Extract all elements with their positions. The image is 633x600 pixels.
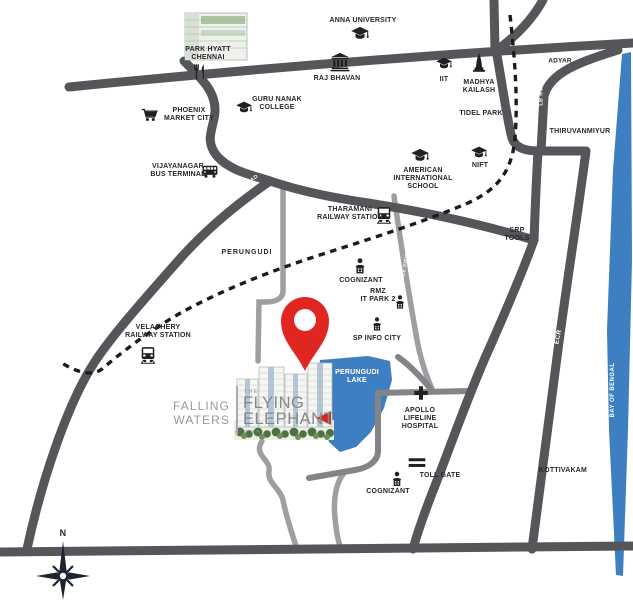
tharamani-railway-station-label: THARAMANI RAILWAY STATION <box>317 206 383 222</box>
phoenix-market-city-label: PHOENIX MARKET CITY <box>164 107 214 123</box>
velachery-railway-station-label: VELACHERY RAILWAY STATION <box>125 324 191 340</box>
perungudi-label: PERUNGUDI <box>221 249 272 257</box>
anna-university-label: ANNA UNIVERSITY <box>330 17 397 25</box>
temple-icon <box>469 53 490 74</box>
graduation-cap-icon <box>236 100 253 117</box>
guru-nanak-college-label: GURU NANAK COLLEGE <box>252 96 302 112</box>
lake-view-rd-label: LAKE VIEW RD <box>401 244 413 285</box>
rmz-it-park-2-label: RMZ IT PARK 2 <box>360 288 395 304</box>
graduation-cap-icon <box>351 25 370 44</box>
tharamani-main-road-label: THARAMANI MAIN ROAD <box>198 174 260 221</box>
hospital-cross-icon <box>413 385 430 402</box>
project-logo: FALLING WATERS THE FLYING ELEPHANT OMR <box>152 386 334 435</box>
iit-label: IIT <box>440 76 449 84</box>
developer-name: FALLING WATERS <box>152 386 230 427</box>
project-name-tagline: OMR <box>244 429 334 434</box>
shopping-cart-icon <box>141 107 159 125</box>
office-icon <box>370 317 385 332</box>
cognizant-south-label: COGNIZANT <box>366 488 409 496</box>
toll-gate-label: TOLL GATE <box>420 472 461 480</box>
kottivakam-label: KOTTIVAKAM <box>539 467 587 475</box>
raj-bhavan-label: RAJ BHAVAN <box>314 75 361 83</box>
restaurant-icon <box>192 64 209 81</box>
project-name: THE FLYING ELEPHANT OMR <box>243 386 334 434</box>
adyar-label: ADYAR <box>548 57 572 64</box>
graduation-cap-icon <box>411 147 430 166</box>
nift-label: NIFT <box>472 162 488 170</box>
park-hyatt-chennai-label: PARK HYATT CHENNAI <box>185 46 230 62</box>
developer-name-line2: WATERS <box>152 413 230 427</box>
thiruvanmiyur-label: THIRUVANMIYUR <box>550 128 611 136</box>
label-layer: ANNA UNIVERSITYPARK HYATT CHENNAIRAJ BHA… <box>0 0 633 600</box>
ecr-label: ECR <box>554 329 563 345</box>
bank-icon <box>330 52 351 73</box>
location-map: ANNA UNIVERSITYPARK HYATT CHENNAIRAJ BHA… <box>0 0 633 600</box>
office-icon <box>352 258 369 275</box>
omr-label: OMR <box>457 327 470 345</box>
toll-gate-icon <box>408 454 427 473</box>
project-name-line2: ELEPHANT <box>243 411 334 427</box>
american-international-school-label: AMERICAN INTERNATIONAL SCHOOL <box>393 167 452 191</box>
vijayanagar-bus-terminal-label: VIJAYANAGAR BUS TERMINAL <box>150 163 205 179</box>
lb-road-label: LB ROAD <box>539 78 544 105</box>
office-icon <box>389 471 405 487</box>
project-name-line1: FLYING <box>243 395 334 411</box>
perungudi-lake-label: PERUNGUDI LAKE <box>335 369 379 385</box>
graduation-cap-icon <box>436 56 453 73</box>
graduation-cap-icon <box>471 145 488 162</box>
logo-divider <box>236 386 238 435</box>
sp-info-city-label: SP INFO CITY <box>353 335 401 343</box>
developer-name-line1: FALLING <box>152 399 230 413</box>
madhya-kailash-label: MADHYA KAILASH <box>463 79 496 95</box>
train-icon <box>139 346 157 364</box>
srp-tools-label: SRP TOOLS <box>505 227 530 243</box>
compass-north-label: N <box>60 528 67 538</box>
bay-of-bengal-label: BAY OF BENGAL <box>610 363 616 418</box>
tidel-park-label: TIDEL PARK <box>459 110 502 118</box>
apollo-lifeline-hospital-label: APOLLO LIFELINE HOSPITAL <box>402 407 438 431</box>
cognizant-north-label: COGNIZANT <box>339 277 382 285</box>
